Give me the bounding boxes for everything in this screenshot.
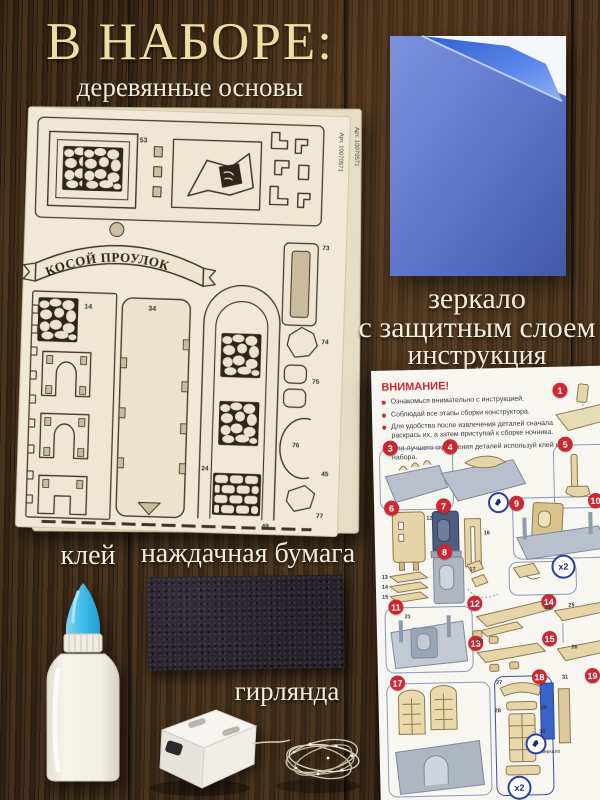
part-callout: 13 (382, 575, 388, 581)
sheet-part-number: 77 (316, 513, 324, 520)
garland-wire (252, 740, 290, 744)
sandpaper-label: наждачная бумага (138, 538, 358, 570)
part-callout: 15 (382, 595, 388, 601)
article-number-text: Арт. 10070571 (353, 127, 359, 167)
glue-label: клей (33, 540, 143, 572)
sheet-part-number: 24 (201, 465, 209, 472)
part-callout: 29 (541, 705, 547, 711)
sheet-part-number: 14 (84, 304, 92, 311)
part-callout: 21 (405, 614, 411, 620)
part-callout: 16 (484, 530, 490, 536)
sheet-part-number: 76 (292, 442, 300, 449)
sheet-part-number: 34 (148, 306, 156, 313)
sheet-part-number: 45 (321, 471, 329, 478)
glue-cap (66, 583, 100, 634)
plywood-sheet-front: Арт. 10070571 53 (15, 107, 350, 537)
mirror-part-note: зеркало (542, 749, 561, 755)
plywood-sheets: Арт. 10070571 Арт. 10070571 53 (13, 96, 372, 543)
step-badge: 10 (588, 493, 600, 508)
step-badge: 19 (585, 668, 600, 683)
part-callout: 26 (571, 644, 577, 650)
part-callout: 27 (496, 680, 502, 686)
part-callout: 23 (544, 605, 550, 611)
garland-group (140, 698, 370, 798)
sheet-part-number: 75 (312, 379, 320, 386)
mirror-with-film (388, 34, 568, 278)
part-callout: 12 (426, 516, 432, 522)
sheet-part-number: 53 (139, 137, 147, 144)
garland-coil (283, 734, 360, 785)
sheet-part-number: 74 (321, 339, 329, 346)
assembly-diagrams (371, 365, 600, 800)
part-callout: 30 (539, 729, 545, 735)
part-callout: 17 (469, 567, 475, 573)
part-callout: 28 (495, 708, 501, 714)
part-callout: 24 (477, 639, 483, 645)
sheet-part-number: 73 (322, 245, 330, 252)
glue-bottle (38, 578, 138, 788)
battery-box (160, 710, 256, 788)
part-callout: 25 (568, 602, 574, 608)
product-photo-canvas: В НАБОРЕ: деревянные основы (0, 0, 600, 800)
instruction-sheet: ВНИМАНИЕ! Ознакомься внимательно с инстр… (371, 365, 600, 800)
part-callout: 14 (382, 585, 388, 591)
part-callout: 31 (562, 675, 568, 681)
sandpaper (146, 575, 344, 671)
page-title: В НАБОРЕ: (10, 12, 370, 72)
article-number-text: Арт. 10070571 (337, 132, 344, 172)
